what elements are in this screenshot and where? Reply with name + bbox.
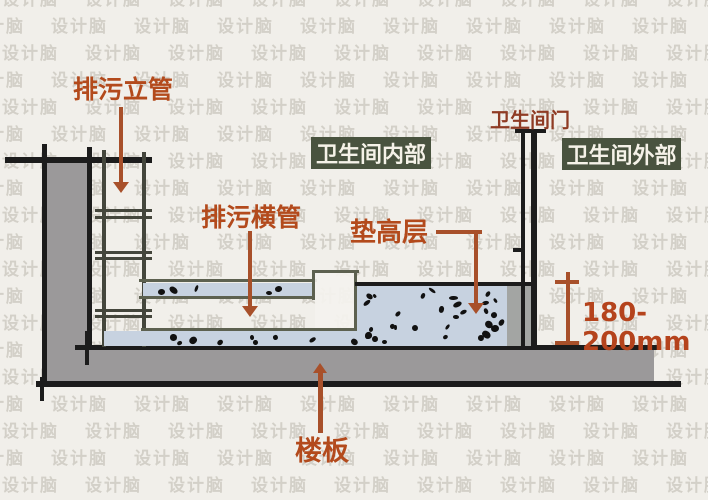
aggregate-dot (420, 292, 426, 299)
aggregate-dot (372, 336, 378, 343)
aggregate-dot (266, 290, 272, 295)
aggregate-dot (363, 299, 371, 307)
label-height-dimension: 180-200mm (582, 299, 708, 356)
aggregate-dot (445, 323, 451, 330)
label-floor-slab: 楼板 (295, 437, 349, 467)
aggregate-dot (490, 311, 498, 319)
aggregate-dot (274, 285, 282, 292)
diagram-canvas: 设计脑设计脑设计脑设计脑设计脑设计脑设计脑设计脑设计脑设计脑设计脑设计脑设计脑设… (0, 0, 708, 500)
aggregate-dot (369, 326, 375, 332)
aggregate-dot (372, 294, 377, 299)
vertical-pipe-leader (119, 107, 123, 183)
aggregate-dot (498, 318, 506, 326)
aggregate-dot (168, 285, 179, 295)
aggregate-dot (438, 305, 445, 312)
aggregate-dot (452, 300, 462, 308)
door-handle-tick (513, 248, 525, 252)
aggregate-dot (449, 296, 458, 300)
aggregate-dot (394, 310, 401, 317)
aggregate-dot (485, 290, 491, 297)
horizontal-pipe-leader (248, 231, 252, 307)
aggregate-dot (177, 340, 183, 346)
dimension-bottom-tick (555, 341, 579, 345)
aggregate-dot (483, 307, 489, 314)
badge-bathroom-outside-text: 卫生间外部 (566, 138, 676, 170)
aggregate-dot (217, 338, 225, 345)
dimension-top-tick (555, 280, 579, 284)
vertical-pipe-arrowhead (113, 182, 129, 193)
raised-layer-arrowhead (468, 303, 484, 314)
label-raised-layer: 垫高层 (350, 219, 428, 248)
label-horizontal-pipe: 排污横管 (201, 204, 301, 232)
raised-layer-leader-v (474, 230, 478, 304)
aggregate-dot (493, 298, 498, 304)
aggregate-dot (442, 334, 449, 340)
door-left-line (521, 131, 525, 347)
label-bathroom-door: 卫生间门 (490, 109, 570, 131)
badge-bathroom-inside-text: 卫生间内部 (316, 137, 426, 169)
aggregate-dot (410, 324, 419, 333)
aggregate-dot (194, 285, 199, 292)
badge-bathroom-inside: 卫生间内部 (311, 137, 431, 169)
aggregate-dot (309, 336, 317, 343)
aggregate-dot (158, 289, 166, 295)
aggregate-dot (187, 336, 197, 346)
door-right-line (531, 131, 537, 350)
aggregate-dot (249, 335, 254, 340)
aggregate-dot (170, 333, 178, 340)
floor-slab-leader (318, 372, 323, 433)
label-vertical-pipe: 排污立管 (73, 76, 173, 104)
aggregate-dot (253, 340, 258, 345)
floor-slab-arrowhead (313, 363, 327, 373)
aggregate-dot (428, 287, 437, 295)
badge-bathroom-outside: 卫生间外部 (562, 138, 681, 170)
aggregate-dot (453, 315, 459, 319)
aggregate-dot (350, 337, 359, 346)
horizontal-pipe-arrowhead (242, 306, 258, 317)
aggregate-dot (382, 340, 387, 344)
aggregate-dot (272, 334, 277, 340)
